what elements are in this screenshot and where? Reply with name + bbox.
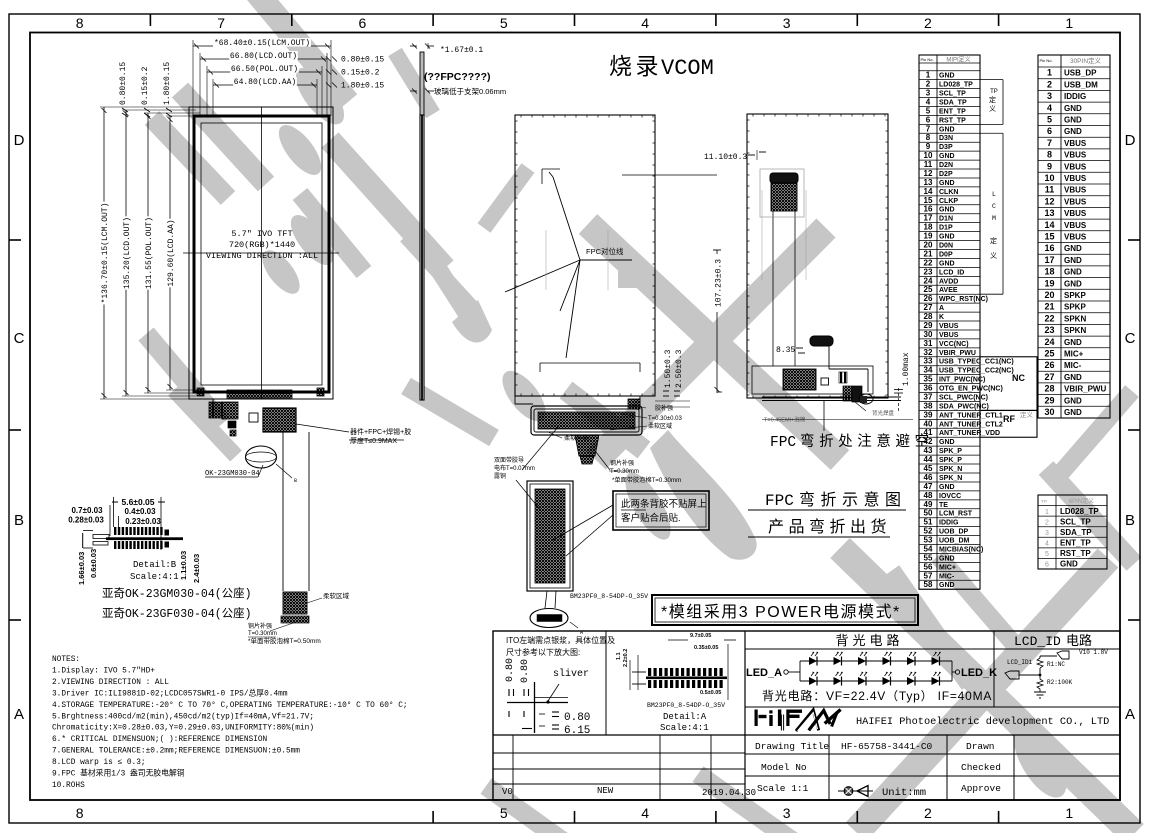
svg-text:9.7±0.05: 9.7±0.05 xyxy=(690,633,711,639)
svg-text:GND: GND xyxy=(1064,408,1082,417)
svg-text:Checked: Checked xyxy=(961,762,1001,773)
svg-text:T=0.30±0.03: T=0.30±0.03 xyxy=(648,416,682,422)
svg-text:18: 18 xyxy=(1044,267,1054,277)
svg-text:GND: GND xyxy=(939,153,955,160)
svg-text:LCD_ID1: LCD_ID1 xyxy=(1007,659,1033,666)
svg-text:WPC_RST(NC): WPC_RST(NC) xyxy=(939,296,988,303)
svg-text:D2N: D2N xyxy=(939,162,953,169)
svg-text:LED_A: LED_A xyxy=(746,667,782,679)
svg-text:5: 5 xyxy=(926,106,931,115)
svg-text:VBUS: VBUS xyxy=(1064,186,1087,195)
svg-text:32: 32 xyxy=(924,348,933,357)
svg-text:Unit:mm: Unit:mm xyxy=(882,787,926,799)
svg-text:46: 46 xyxy=(924,473,933,482)
svg-text:6: 6 xyxy=(926,115,931,124)
svg-text:2: 2 xyxy=(1047,79,1052,89)
svg-text:客户贴合后贴.: 客户贴合后贴. xyxy=(621,512,681,524)
svg-text:25: 25 xyxy=(924,285,933,294)
svg-text:GND: GND xyxy=(1064,279,1082,288)
svg-text:0.23±0.03: 0.23±0.03 xyxy=(125,517,161,526)
svg-text:TE: TE xyxy=(939,502,948,509)
svg-text:USB_DM: USB_DM xyxy=(1064,80,1098,89)
svg-text:USB_TYPEC_CC1(NC): USB_TYPEC_CC1(NC) xyxy=(939,359,1014,366)
svg-text:*1.67±0.1: *1.67±0.1 xyxy=(440,46,483,55)
svg-text:52: 52 xyxy=(924,527,933,536)
svg-text:5: 5 xyxy=(500,15,508,31)
svg-text:D1P: D1P xyxy=(939,225,953,232)
svg-text:4.STORAGE TEMPERATURE:-20° C T: 4.STORAGE TEMPERATURE:-20° C TO 70° C,OP… xyxy=(52,701,408,710)
svg-text:CLKN: CLKN xyxy=(939,189,958,196)
svg-text:SPKN: SPKN xyxy=(1064,326,1086,335)
svg-text:64.80(LCD.AA): 64.80(LCD.AA) xyxy=(234,78,296,87)
svg-text:玻璃低于支架0.06mm: 玻璃低于支架0.06mm xyxy=(434,86,506,96)
svg-text:30: 30 xyxy=(924,330,933,339)
svg-text:35: 35 xyxy=(924,375,933,384)
svg-text:6: 6 xyxy=(1045,562,1049,569)
svg-text:17: 17 xyxy=(924,214,933,223)
svg-text:26: 26 xyxy=(1044,360,1054,370)
svg-text:D3P: D3P xyxy=(939,144,953,151)
svg-text:44: 44 xyxy=(924,455,933,464)
svg-text:NEW: NEW xyxy=(597,786,614,796)
svg-text:定: 定 xyxy=(990,236,997,245)
svg-text:GND: GND xyxy=(1060,560,1078,569)
svg-text:*单面带胶泡棉T=0.50mm: *单面带胶泡棉T=0.50mm xyxy=(248,636,321,645)
svg-text:*136.70±0.15(LCM.OUT): *136.70±0.15(LCM.OUT) xyxy=(101,203,110,304)
svg-text:720(RGB)*1440: 720(RGB)*1440 xyxy=(229,240,295,250)
svg-text:4: 4 xyxy=(926,97,931,106)
svg-text:HAIFEI Photoelectric developme: HAIFEI Photoelectric development CO., LT… xyxy=(856,716,1109,728)
svg-text:Scale:4:1: Scale:4:1 xyxy=(130,572,179,582)
svg-text:30: 30 xyxy=(1044,407,1054,417)
svg-text:MIC-: MIC- xyxy=(939,573,955,580)
svg-text:11: 11 xyxy=(1045,185,1055,195)
svg-text:CLKP: CLKP xyxy=(939,198,958,205)
svg-text:GND: GND xyxy=(939,234,955,241)
svg-text:SPK_P: SPK_P xyxy=(939,448,962,455)
svg-text:胶补强: 胶补强 xyxy=(655,404,673,412)
svg-text:FPC: FPC xyxy=(770,435,796,451)
svg-text:GND: GND xyxy=(1064,338,1082,347)
svg-text:SPKP: SPKP xyxy=(1064,291,1086,300)
svg-text:GND: GND xyxy=(939,439,955,446)
svg-text:8: 8 xyxy=(76,15,84,31)
svg-text:VIEWING DIRECTION :ALL: VIEWING DIRECTION :ALL xyxy=(206,251,318,261)
svg-text:BM23PF0_8-54DP-O_35V: BM23PF0_8-54DP-O_35V xyxy=(570,593,648,600)
svg-text:LCD_ID: LCD_ID xyxy=(1014,634,1061,649)
svg-text:MIPI定义: MIPI定义 xyxy=(946,56,970,64)
svg-text:13: 13 xyxy=(1044,208,1054,218)
svg-text:铜片补强: 铜片补强 xyxy=(248,622,272,630)
svg-text:2019.04.30: 2019.04.30 xyxy=(702,788,756,798)
svg-text:INT_PWC(NC): INT_PWC(NC) xyxy=(939,377,985,384)
svg-text:*单面带胶泡棉T=0.30mm: *单面带胶泡棉T=0.30mm xyxy=(612,476,681,484)
svg-text:1.50±0.3: 1.50±0.3 xyxy=(664,349,673,388)
svg-text:FPC: FPC xyxy=(765,492,794,510)
svg-text:UOB_DP: UOB_DP xyxy=(939,529,969,536)
svg-text:GND: GND xyxy=(939,126,955,133)
svg-text:1: 1 xyxy=(1065,15,1073,31)
svg-text:33: 33 xyxy=(924,357,933,366)
svg-text:Scale 1:1: Scale 1:1 xyxy=(757,783,809,794)
svg-text:L: L xyxy=(992,191,996,198)
svg-text:5.7" IVO TFT: 5.7" IVO TFT xyxy=(231,229,292,239)
svg-text:R1:NC: R1:NC xyxy=(1047,661,1065,668)
svg-text:B: B xyxy=(294,478,297,484)
svg-text:FPC对位线: FPC对位线 xyxy=(586,246,624,256)
svg-text:RF: RF xyxy=(1003,414,1015,424)
svg-text:34: 34 xyxy=(924,366,933,375)
svg-text:23: 23 xyxy=(1044,325,1054,335)
svg-text:Scale:4:1: Scale:4:1 xyxy=(660,723,709,733)
svg-text:20: 20 xyxy=(1044,290,1054,300)
svg-text:电路: 电路 xyxy=(1066,633,1092,648)
svg-text:LD028_TP: LD028_TP xyxy=(1060,507,1099,516)
svg-text:12: 12 xyxy=(1044,196,1054,206)
svg-text:6: 6 xyxy=(1047,126,1052,136)
svg-text:D0N: D0N xyxy=(939,243,953,250)
svg-text:0.28±0.03: 0.28±0.03 xyxy=(68,516,104,525)
svg-text:8: 8 xyxy=(76,805,84,821)
svg-text:ENT_TP: ENT_TP xyxy=(939,108,966,115)
svg-text:T=0.30mm: T=0.30mm xyxy=(610,469,639,475)
svg-text:0.7±0.03: 0.7±0.03 xyxy=(71,506,103,515)
svg-text:MIC+: MIC+ xyxy=(1064,350,1084,359)
svg-text:RST_TP: RST_TP xyxy=(939,117,966,124)
svg-text:14: 14 xyxy=(1044,220,1054,230)
svg-text:VBUS: VBUS xyxy=(1064,197,1087,206)
svg-text:4: 4 xyxy=(1047,103,1052,113)
svg-text:Approve: Approve xyxy=(961,783,1001,794)
svg-text:15: 15 xyxy=(924,196,933,205)
svg-text:VBIR_PWU: VBIR_PWU xyxy=(939,350,976,357)
svg-text:D: D xyxy=(14,132,25,149)
svg-text:SCL_TP: SCL_TP xyxy=(939,91,966,98)
svg-text:USB_TYPEC_CC2(NC): USB_TYPEC_CC2(NC) xyxy=(939,368,1014,375)
svg-text:26: 26 xyxy=(924,294,933,303)
svg-text:2.VIEWING DIRECTION : ALL: 2.VIEWING DIRECTION : ALL xyxy=(52,679,169,687)
svg-text:C: C xyxy=(992,203,996,210)
svg-text:22: 22 xyxy=(924,258,933,267)
svg-text:5: 5 xyxy=(1047,115,1052,125)
svg-text:1: 1 xyxy=(926,71,931,80)
svg-text:VBUS: VBUS xyxy=(1064,139,1087,148)
svg-text:GND: GND xyxy=(939,484,955,491)
svg-text:背光焊盘: 背光焊盘 xyxy=(872,409,895,417)
svg-text:GND: GND xyxy=(1064,268,1082,277)
svg-text:47: 47 xyxy=(924,482,933,491)
svg-text:3: 3 xyxy=(783,805,791,821)
svg-text:15: 15 xyxy=(1044,232,1054,242)
svg-text:GND: GND xyxy=(1064,373,1082,382)
svg-text:14: 14 xyxy=(924,187,933,196)
svg-text:VBUS: VBUS xyxy=(1064,151,1087,160)
svg-text:HF-65758-3441-C0: HF-65758-3441-C0 xyxy=(841,741,933,752)
svg-text:2.50±0.3: 2.50±0.3 xyxy=(675,349,684,388)
svg-text:12: 12 xyxy=(924,169,933,178)
svg-text:2.4±0.03: 2.4±0.03 xyxy=(192,554,201,583)
svg-text:弯折处注意避空: 弯折处注意避空 xyxy=(800,432,934,450)
svg-text:露铜: 露铜 xyxy=(494,472,506,480)
svg-text:GND: GND xyxy=(1064,396,1082,405)
svg-text:43: 43 xyxy=(924,446,933,455)
svg-text:0.80: 0.80 xyxy=(520,659,531,683)
svg-text:0.80±0.15: 0.80±0.15 xyxy=(119,62,128,105)
svg-text:66.80(LCD.OUT): 66.80(LCD.OUT) xyxy=(230,52,297,61)
svg-text:K: K xyxy=(939,314,944,321)
svg-text:24: 24 xyxy=(1044,337,1054,347)
svg-text:9: 9 xyxy=(926,142,931,151)
svg-text:4: 4 xyxy=(641,805,649,821)
svg-text:LCM_RST: LCM_RST xyxy=(939,511,973,518)
svg-text:8: 8 xyxy=(926,133,931,142)
svg-text:129.60(LCD.AA): 129.60(LCD.AA) xyxy=(167,219,176,286)
svg-text:38: 38 xyxy=(924,401,933,410)
svg-text:义: 义 xyxy=(989,105,996,113)
svg-text:5: 5 xyxy=(1045,551,1049,558)
svg-text:13: 13 xyxy=(924,178,933,187)
svg-text:D2P: D2P xyxy=(939,171,953,178)
svg-text:SCL_TP: SCL_TP xyxy=(1060,517,1091,526)
svg-text:弯折示意图: 弯折示意图 xyxy=(799,490,907,509)
svg-text:10.ROHS: 10.ROHS xyxy=(52,782,85,790)
svg-text:2: 2 xyxy=(924,15,932,31)
svg-text:SPK_P: SPK_P xyxy=(939,457,962,464)
svg-text:8: 8 xyxy=(1047,150,1052,160)
svg-text:D0P: D0P xyxy=(939,251,953,258)
svg-text:135.20(LCD.OUT): 135.20(LCD.OUT) xyxy=(123,217,132,289)
svg-text:24: 24 xyxy=(924,276,933,285)
svg-text:2: 2 xyxy=(926,80,931,89)
svg-text:6: 6 xyxy=(359,15,367,31)
svg-text:C: C xyxy=(14,330,25,347)
svg-text:NOTES:: NOTES: xyxy=(52,656,80,664)
svg-text:背光电路：VF=22.4V（Typ） IF=40MA: 背光电路：VF=22.4V（Typ） IF=40MA xyxy=(762,688,992,703)
svg-text:10: 10 xyxy=(1044,173,1054,183)
svg-text:8.LCD warp is ≤ 0.3;: 8.LCD warp is ≤ 0.3; xyxy=(52,759,146,767)
svg-text:51: 51 xyxy=(924,518,933,527)
svg-text:21: 21 xyxy=(924,249,933,258)
svg-text:B: B xyxy=(1125,512,1135,529)
svg-text:131.55(POL.OUT): 131.55(POL.OUT) xyxy=(145,217,154,289)
svg-text:VBUS: VBUS xyxy=(1064,233,1087,242)
svg-text:电布T=0.07mm: 电布T=0.07mm xyxy=(494,464,535,472)
svg-text:50: 50 xyxy=(924,509,933,518)
svg-text:MIC-: MIC- xyxy=(1064,361,1082,370)
svg-text:A: A xyxy=(939,305,944,312)
svg-text:A: A xyxy=(1125,706,1135,723)
svg-text:4: 4 xyxy=(1045,540,1049,547)
svg-text:1.80±0.15: 1.80±0.15 xyxy=(341,82,384,91)
svg-text:Pin No.: Pin No. xyxy=(1040,58,1053,63)
svg-text:GND: GND xyxy=(939,555,955,562)
svg-text:SCL_PWC(NC): SCL_PWC(NC) xyxy=(939,394,988,401)
svg-text:SDA_TP: SDA_TP xyxy=(939,99,967,106)
svg-text:ANT_TUNER_CTL2: ANT_TUNER_CTL2 xyxy=(939,421,1003,428)
svg-text:柔软区域: 柔软区域 xyxy=(648,422,672,430)
svg-text:LCD_ID: LCD_ID xyxy=(939,269,964,276)
svg-text:MIC+: MIC+ xyxy=(939,564,956,571)
svg-text:28: 28 xyxy=(1044,384,1054,394)
svg-text:29: 29 xyxy=(924,321,933,330)
svg-text:SPKP: SPKP xyxy=(1064,303,1086,312)
svg-text:2: 2 xyxy=(1045,519,1049,526)
svg-text:0.80: 0.80 xyxy=(564,712,590,724)
svg-text:C: C xyxy=(1125,330,1136,347)
svg-text:VBUS: VBUS xyxy=(939,323,959,330)
svg-text:ANT_TUNER_CTL1: ANT_TUNER_CTL1 xyxy=(939,412,1003,419)
svg-text:AVEE: AVEE xyxy=(939,287,958,294)
svg-text:6.* CRITICAL DIMENSUON;( ):REF: 6.* CRITICAL DIMENSUON;( ):REFERENCE DIM… xyxy=(52,736,268,744)
svg-text:20: 20 xyxy=(924,241,933,250)
svg-text:IOVCC: IOVCC xyxy=(939,493,961,500)
svg-text:(??FPC????): (??FPC????) xyxy=(424,71,490,83)
svg-text:19: 19 xyxy=(1044,278,1054,288)
svg-text:0.15±0.2: 0.15±0.2 xyxy=(341,69,380,78)
svg-text:Detail:B: Detail:B xyxy=(133,560,177,570)
svg-text:尺寸参考以下放大图:: 尺寸参考以下放大图: xyxy=(506,647,580,657)
svg-text:5: 5 xyxy=(500,805,508,821)
svg-text:29: 29 xyxy=(1044,395,1054,405)
svg-text:2.2±0.2: 2.2±0.2 xyxy=(623,649,629,667)
svg-text:GND: GND xyxy=(939,73,955,80)
svg-text:SDA_PWC(NC): SDA_PWC(NC) xyxy=(939,403,989,410)
svg-text:GND: GND xyxy=(1064,116,1082,125)
svg-text:27: 27 xyxy=(1044,372,1054,382)
svg-text:TP: TP xyxy=(990,88,998,95)
svg-text:1: 1 xyxy=(1047,68,1052,78)
svg-text:1: 1 xyxy=(1065,805,1073,821)
svg-text:GND: GND xyxy=(939,582,955,589)
svg-text:厚度T≤0.9MAX: 厚度T≤0.9MAX xyxy=(350,436,397,445)
svg-text:SPK_N: SPK_N xyxy=(939,466,962,473)
svg-text:UOB_DM: UOB_DM xyxy=(939,538,970,545)
svg-text:ANT_TUNER_VDD: ANT_TUNER_VDD xyxy=(939,430,1000,437)
svg-text:49: 49 xyxy=(924,500,933,509)
svg-text:7: 7 xyxy=(217,15,225,31)
svg-text:48: 48 xyxy=(924,491,933,500)
svg-text:17: 17 xyxy=(1044,255,1054,265)
svg-text:Drawn: Drawn xyxy=(966,741,995,752)
svg-text:GND: GND xyxy=(1064,244,1082,253)
svg-text:18: 18 xyxy=(924,223,933,232)
svg-text:7: 7 xyxy=(1047,138,1052,148)
svg-text:53: 53 xyxy=(924,536,933,545)
svg-text:66.50(POL.OUT): 66.50(POL.OUT) xyxy=(231,65,298,74)
svg-text:30PIN定义: 30PIN定义 xyxy=(1070,56,1102,65)
svg-text:双面带胶导: 双面带胶导 xyxy=(494,456,524,464)
svg-text:VBUS: VBUS xyxy=(1064,221,1087,230)
svg-text:GND: GND xyxy=(939,260,955,267)
svg-text:7.GENERAL TOLERANCE:±0.2mm;REF: 7.GENERAL TOLERANCE:±0.2mm;REFERENCE DIM… xyxy=(52,748,300,756)
svg-text:9: 9 xyxy=(1047,161,1052,171)
svg-text:烧录: 烧录 xyxy=(609,53,662,79)
svg-text:AVDD: AVDD xyxy=(939,278,958,285)
svg-text:ITO左端需点银浆，具体位置及: ITO左端需点银浆，具体位置及 xyxy=(506,635,615,645)
svg-text:BM23PF0_8-54DP-O_35V: BM23PF0_8-54DP-O_35V xyxy=(647,702,725,709)
svg-text:10: 10 xyxy=(924,151,933,160)
svg-text:5.Brghtness:400cd/m2(min),450c: 5.Brghtness:400cd/m2(min),450cd/m2(typ)I… xyxy=(52,713,314,721)
svg-text:USB_DP: USB_DP xyxy=(1064,69,1097,78)
svg-text:8.35: 8.35 xyxy=(776,346,795,355)
svg-text:6PIN定义: 6PIN定义 xyxy=(1069,497,1094,505)
svg-text:39: 39 xyxy=(924,410,933,419)
svg-text:Model No: Model No xyxy=(761,762,807,773)
svg-text:TP: TP xyxy=(1041,499,1047,504)
svg-text:42: 42 xyxy=(924,437,933,446)
svg-text:57: 57 xyxy=(924,571,933,580)
svg-text:16: 16 xyxy=(924,205,933,214)
svg-text:背光电路: 背光电路 xyxy=(835,633,903,648)
svg-text:T=0.30mm: T=0.30mm xyxy=(248,631,277,637)
svg-text:Chromaticity:X=0.28±0.03,Y=0.2: Chromaticity:X=0.28±0.03,Y=0.29±0.03,UNI… xyxy=(52,725,314,733)
svg-text:1.1±0.03: 1.1±0.03 xyxy=(179,551,188,580)
svg-text:柔软区域: 柔软区域 xyxy=(564,434,589,442)
svg-text:11: 11 xyxy=(924,160,933,169)
svg-text:VBIR_PWU: VBIR_PWU xyxy=(1064,385,1106,394)
svg-text:1.1: 1.1 xyxy=(616,652,622,660)
svg-text:产品弯折出货: 产品弯折出货 xyxy=(768,518,891,536)
svg-text:SPKN: SPKN xyxy=(1064,314,1086,323)
svg-text:VCOM: VCOM xyxy=(661,56,714,81)
svg-text:亚奇OK-23GM030-04(公座): 亚奇OK-23GM030-04(公座) xyxy=(102,586,252,601)
svg-text:Pin No.: Pin No. xyxy=(921,57,934,62)
svg-text:0.80±0.15: 0.80±0.15 xyxy=(341,56,384,65)
svg-text:55: 55 xyxy=(924,553,933,562)
svg-text:SPK_N: SPK_N xyxy=(939,475,962,482)
svg-text:R2:100K: R2:100K xyxy=(1047,679,1073,686)
svg-text:VCC(NC): VCC(NC) xyxy=(939,341,969,348)
svg-text:58: 58 xyxy=(924,580,933,589)
svg-text:D: D xyxy=(1125,132,1136,149)
svg-text:27: 27 xyxy=(924,303,933,312)
svg-text:IDDIG: IDDIG xyxy=(1064,92,1086,101)
svg-text:NC: NC xyxy=(1012,373,1025,383)
svg-text:V10 1.8V: V10 1.8V xyxy=(1079,649,1108,656)
svg-text:Drawing Title: Drawing Title xyxy=(755,741,829,752)
svg-text:此两条背胶不贴屏上: 此两条背胶不贴屏上 xyxy=(621,498,707,510)
svg-text:RST_TP: RST_TP xyxy=(1060,549,1091,558)
svg-text:定义: 定义 xyxy=(1020,410,1034,419)
svg-text:LED_K: LED_K xyxy=(961,667,997,679)
svg-text:OTG_EN_PWC(NC): OTG_EN_PWC(NC) xyxy=(939,386,1003,393)
svg-text:钢片补强: 钢片补强 xyxy=(610,459,634,467)
svg-text:1.66±0.03: 1.66±0.03 xyxy=(77,552,86,585)
svg-text:VBUS: VBUS xyxy=(1064,162,1087,171)
svg-text:GND: GND xyxy=(939,180,955,187)
svg-text:22: 22 xyxy=(1044,313,1054,323)
svg-text:3: 3 xyxy=(1045,530,1049,537)
svg-text:GND: GND xyxy=(1064,104,1082,113)
svg-text:37: 37 xyxy=(924,392,933,401)
svg-text:LD028_TP: LD028_TP xyxy=(939,82,973,89)
svg-text:GND: GND xyxy=(1064,127,1082,136)
svg-text:31: 31 xyxy=(924,339,933,348)
svg-text:器件+FPC+焊锡+胶: 器件+FPC+焊锡+胶 xyxy=(350,427,411,436)
svg-text:VBUS: VBUS xyxy=(939,332,959,339)
svg-text:A: A xyxy=(14,706,24,723)
svg-text:28: 28 xyxy=(924,312,933,321)
svg-text:0.6±0.03: 0.6±0.03 xyxy=(89,549,98,578)
svg-text:SDA_TP: SDA_TP xyxy=(1060,528,1092,537)
svg-text:54: 54 xyxy=(924,544,933,553)
svg-text:5.6±0.05: 5.6±0.05 xyxy=(121,497,154,507)
svg-text:23: 23 xyxy=(924,267,933,276)
svg-text:0.80: 0.80 xyxy=(505,658,516,682)
svg-text:41: 41 xyxy=(924,428,933,437)
svg-text:0.4±0.03: 0.4±0.03 xyxy=(124,507,156,516)
svg-text:GND: GND xyxy=(1064,256,1082,265)
